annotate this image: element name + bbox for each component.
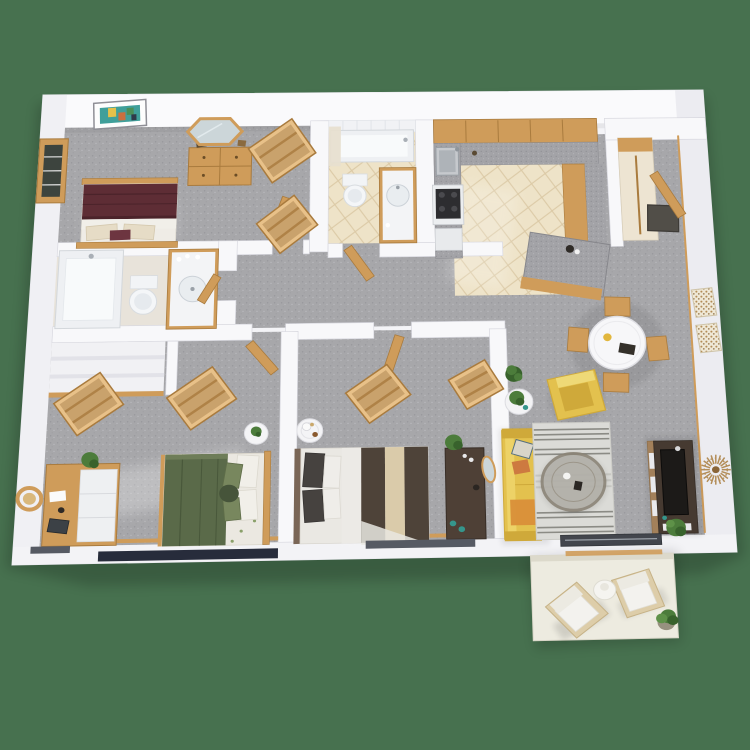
dresser-item bbox=[473, 485, 480, 491]
burner bbox=[439, 192, 445, 198]
mosaic-wall-art bbox=[696, 323, 722, 353]
faucet bbox=[455, 147, 459, 151]
knob bbox=[235, 156, 238, 159]
faucet bbox=[89, 254, 94, 259]
floor-plant bbox=[514, 373, 522, 381]
sofa-pillow bbox=[512, 459, 531, 474]
wall bbox=[309, 121, 328, 252]
dresser-item bbox=[450, 521, 457, 527]
art-tile bbox=[108, 108, 116, 118]
potted-plant bbox=[666, 520, 675, 528]
wall bbox=[285, 323, 373, 340]
wall bbox=[328, 244, 343, 258]
accent-pillow bbox=[110, 230, 131, 241]
art-tile bbox=[118, 112, 125, 121]
cup bbox=[523, 405, 528, 410]
pillow bbox=[303, 453, 325, 488]
kettle bbox=[302, 423, 311, 431]
wall bbox=[218, 241, 237, 271]
maroon-quilt bbox=[82, 184, 178, 219]
coffee-maker bbox=[566, 245, 574, 253]
dining-chair bbox=[646, 336, 669, 361]
wall bbox=[604, 118, 706, 141]
duvet-edge bbox=[165, 454, 228, 460]
television bbox=[661, 450, 689, 515]
dining-table bbox=[589, 317, 646, 370]
toilet-seat bbox=[134, 293, 152, 310]
pillow bbox=[323, 488, 341, 519]
closet-shelf bbox=[618, 138, 653, 152]
potted-plant bbox=[675, 526, 686, 536]
burner bbox=[451, 192, 457, 198]
faucet bbox=[396, 186, 400, 190]
dresser-item bbox=[469, 458, 474, 462]
bottle bbox=[386, 223, 391, 227]
striped-duvet bbox=[404, 447, 429, 542]
bathtub-basin bbox=[63, 258, 116, 321]
dining-chair bbox=[603, 373, 629, 393]
headboard bbox=[76, 241, 177, 248]
burner bbox=[451, 206, 457, 212]
dresser-plant bbox=[453, 441, 463, 450]
coffee-item bbox=[310, 423, 314, 427]
striped-duvet bbox=[385, 447, 405, 542]
upper-cabinets bbox=[433, 118, 597, 143]
plant bbox=[516, 398, 525, 406]
toilet-tank bbox=[343, 174, 368, 186]
round-pillow bbox=[219, 485, 239, 503]
bottle bbox=[195, 255, 200, 260]
hexagon-mirror bbox=[188, 119, 242, 145]
desk-item bbox=[58, 507, 65, 513]
wall bbox=[415, 120, 435, 243]
cabinet-run bbox=[562, 164, 588, 247]
bottle bbox=[185, 254, 190, 258]
wall bbox=[303, 240, 309, 254]
floral-dot bbox=[231, 540, 234, 543]
cabinet-seam bbox=[498, 120, 499, 142]
closet-side-wall bbox=[166, 341, 179, 395]
art-tile bbox=[127, 108, 134, 116]
console-item bbox=[662, 516, 667, 520]
desk-plant bbox=[89, 459, 99, 468]
shower-curtain bbox=[329, 127, 341, 167]
dresser-item bbox=[459, 526, 466, 532]
art-tile bbox=[131, 114, 136, 120]
patio-table-item bbox=[600, 583, 609, 591]
papers bbox=[49, 490, 66, 502]
bottle bbox=[177, 257, 182, 262]
drain bbox=[190, 287, 194, 291]
table-item bbox=[603, 333, 611, 341]
knob bbox=[203, 156, 206, 159]
bathtub-basin bbox=[337, 135, 408, 158]
faucet bbox=[403, 138, 407, 142]
toilet-tank bbox=[130, 276, 158, 289]
floor-plan-image bbox=[0, 0, 750, 750]
window-slit bbox=[30, 546, 70, 554]
sunburst-center bbox=[712, 466, 720, 473]
dishwasher bbox=[435, 228, 462, 250]
drawer-line bbox=[79, 493, 116, 494]
table-item bbox=[563, 473, 571, 480]
cup bbox=[575, 249, 580, 254]
drawer-line bbox=[78, 517, 115, 518]
burner bbox=[439, 206, 445, 212]
dresser-item bbox=[463, 454, 467, 458]
laptop bbox=[47, 519, 69, 534]
floral-dot bbox=[240, 530, 243, 533]
mosaic-wall-art bbox=[691, 288, 717, 318]
coffee-cup bbox=[312, 432, 318, 437]
candle bbox=[574, 481, 583, 491]
sheet-band bbox=[342, 448, 362, 544]
knob bbox=[234, 174, 237, 177]
kitchen-sink-basin bbox=[439, 150, 456, 172]
console-item bbox=[675, 446, 680, 451]
floor-plan-svg bbox=[0, 0, 750, 750]
pillow bbox=[323, 456, 341, 488]
desk-drawers bbox=[77, 469, 118, 542]
desk-chair-seat bbox=[23, 493, 36, 505]
counter-item bbox=[472, 151, 477, 156]
toilet-seat bbox=[348, 189, 362, 203]
dining-chair bbox=[605, 297, 630, 316]
knob bbox=[202, 174, 205, 177]
dresser-item bbox=[237, 140, 246, 147]
potted-plant bbox=[656, 614, 667, 624]
potted-plant bbox=[667, 615, 678, 625]
dining-chair bbox=[567, 327, 589, 352]
nightstand-plant bbox=[256, 432, 261, 437]
floor-plant bbox=[506, 365, 517, 375]
pillow bbox=[303, 489, 325, 522]
